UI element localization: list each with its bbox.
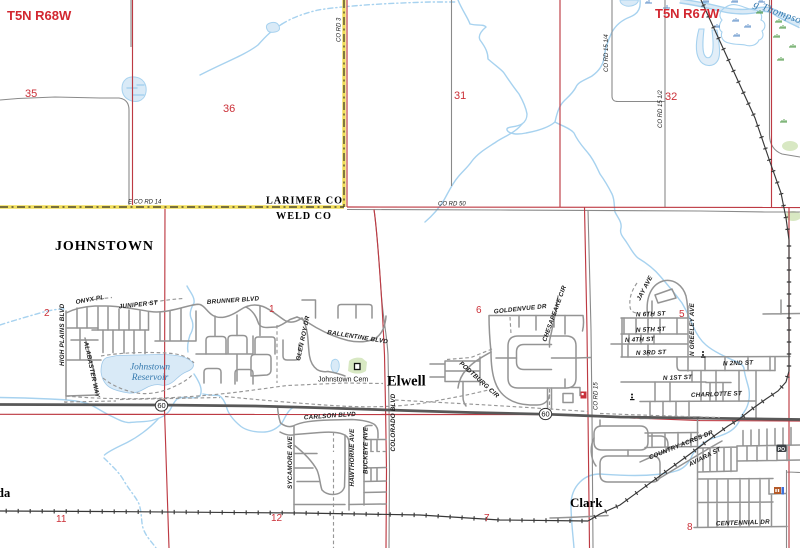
- svg-text:11: 11: [56, 514, 67, 525]
- svg-text:JOHNSTOWN: JOHNSTOWN: [55, 239, 154, 254]
- svg-text:12: 12: [271, 513, 283, 524]
- svg-text:COLORADO BLVD: COLORADO BLVD: [390, 393, 397, 451]
- svg-text:N 2ND ST: N 2ND ST: [723, 359, 754, 367]
- svg-text:N 6TH ST: N 6TH ST: [636, 310, 667, 318]
- svg-text:HIGH PLAINS BLVD: HIGH PLAINS BLVD: [59, 303, 66, 366]
- svg-text:LARIMER CO: LARIMER CO: [266, 196, 343, 207]
- svg-text:8: 8: [687, 522, 693, 533]
- svg-text:CO RD 15 1/2: CO RD 15 1/2: [658, 90, 664, 128]
- svg-text:T5N R68W: T5N R68W: [7, 8, 72, 23]
- svg-text:N 1ST ST: N 1ST ST: [663, 374, 693, 382]
- svg-text:T5N R67W: T5N R67W: [655, 6, 720, 21]
- svg-text:5: 5: [679, 309, 685, 320]
- svg-text:60: 60: [541, 410, 549, 419]
- svg-text:Johnstown Cem: Johnstown Cem: [318, 377, 368, 384]
- svg-text:7: 7: [484, 513, 490, 524]
- svg-text:32: 32: [665, 91, 677, 103]
- svg-text:Clark: Clark: [570, 495, 603, 510]
- svg-text:6: 6: [476, 305, 482, 316]
- svg-text:CO RD 15: CO RD 15: [594, 382, 600, 410]
- svg-text:N 4TH ST: N 4TH ST: [625, 336, 656, 344]
- svg-text:WELD CO: WELD CO: [276, 211, 332, 222]
- svg-text:31: 31: [454, 90, 466, 102]
- svg-text:da: da: [0, 486, 11, 500]
- svg-text:Johnstown: Johnstown: [130, 363, 170, 373]
- svg-text:HAWTHORNE AVE: HAWTHORNE AVE: [349, 428, 356, 486]
- svg-text:2: 2: [44, 308, 50, 319]
- svg-text:35: 35: [25, 88, 37, 100]
- svg-text:N 3RD ST: N 3RD ST: [636, 349, 667, 357]
- svg-text:Elwell: Elwell: [387, 374, 426, 390]
- svg-text:CO RD 3: CO RD 3: [337, 17, 343, 42]
- svg-text:60: 60: [157, 401, 165, 410]
- svg-text:PO: PO: [778, 447, 785, 453]
- svg-text:CO RD 50: CO RD 50: [438, 202, 466, 208]
- svg-text:Reservoir: Reservoir: [131, 373, 169, 383]
- svg-text:SYCAMORE AVE: SYCAMORE AVE: [287, 436, 294, 489]
- svg-text:36: 36: [223, 103, 235, 115]
- svg-text:N GREELEY AVE: N GREELEY AVE: [689, 303, 696, 356]
- svg-text:CO RD 15 1/4: CO RD 15 1/4: [604, 34, 610, 72]
- svg-text:N 5TH ST: N 5TH ST: [636, 326, 667, 334]
- svg-text:BUCKEYE AVE: BUCKEYE AVE: [363, 426, 370, 474]
- svg-text:E CO RD 14: E CO RD 14: [128, 200, 162, 206]
- svg-text:1: 1: [269, 304, 275, 315]
